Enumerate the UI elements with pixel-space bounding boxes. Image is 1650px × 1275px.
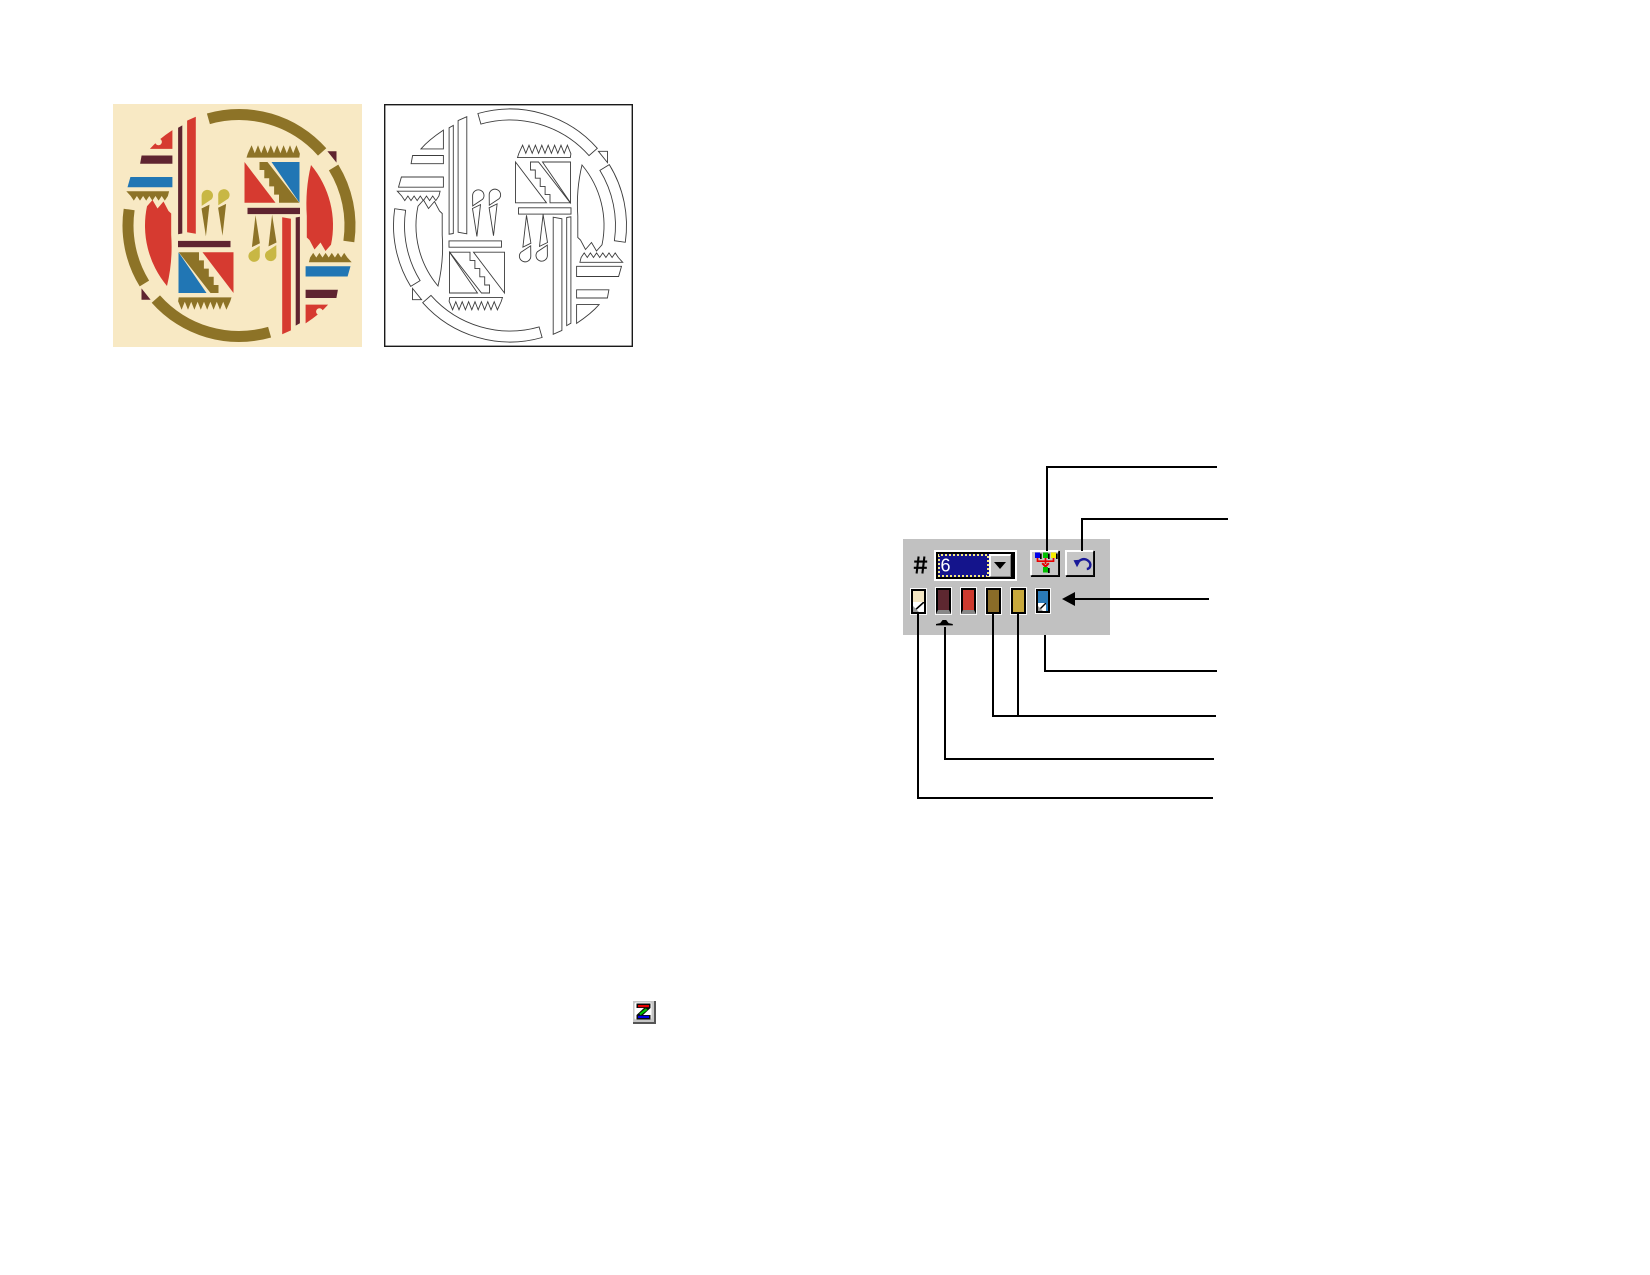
svg-text:6: 6	[941, 556, 951, 576]
